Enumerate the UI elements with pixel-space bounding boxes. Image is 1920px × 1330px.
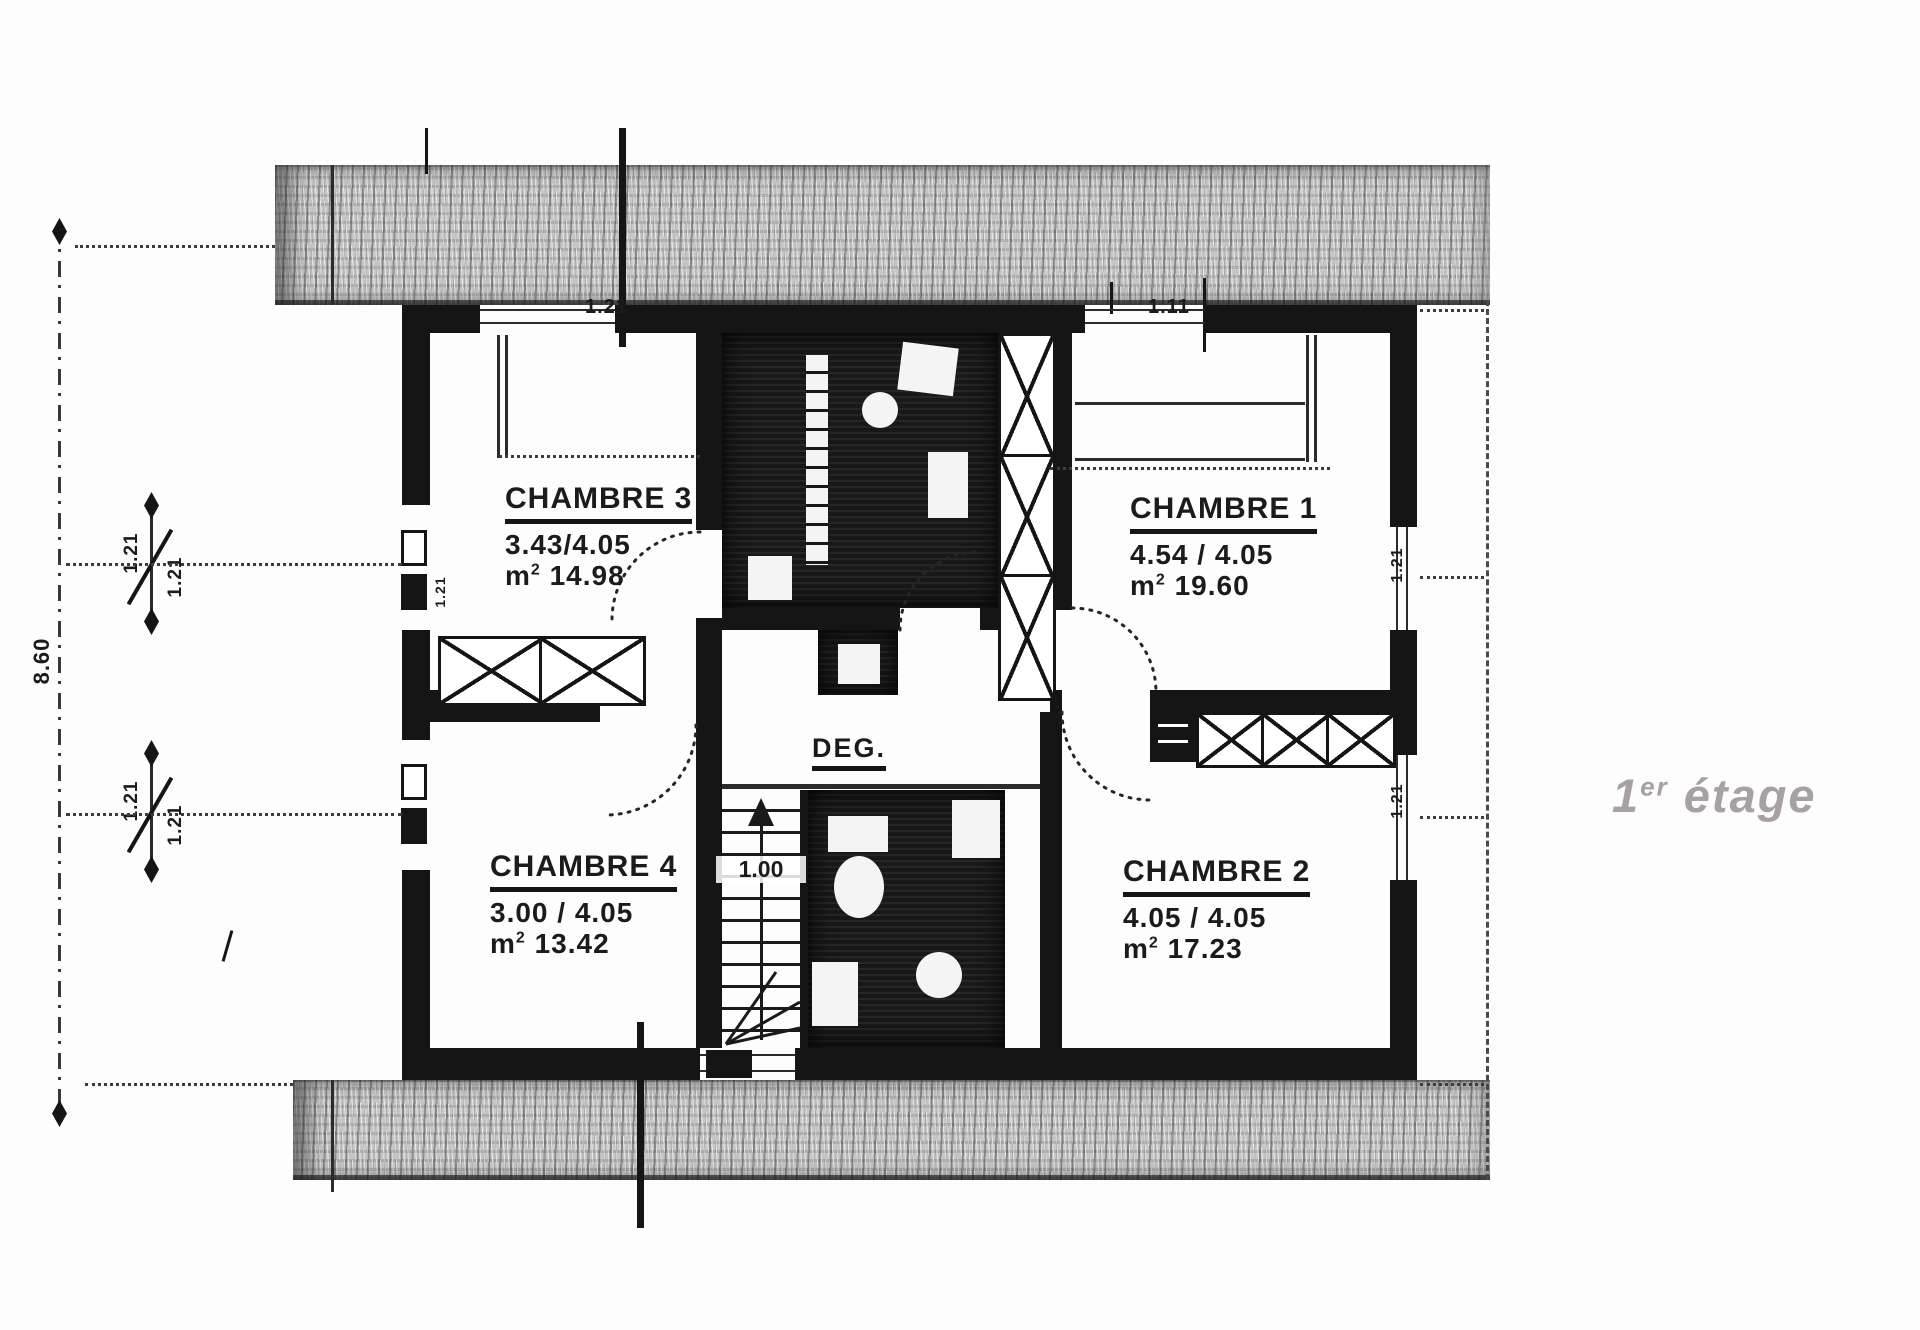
window-dim-right-upper: 1.21 (1389, 535, 1407, 595)
ref-line (1420, 576, 1484, 579)
dim-label-left-lower-bottom: 1.21 (165, 793, 187, 857)
window-dim-left-jamb: 1.21 (432, 566, 448, 618)
room-label-chambre-4: CHAMBRE 4 3.00 / 4.05 m2 13.42 (490, 850, 677, 959)
floor-plan-scan: 1.00 CHAMBRE 3 3.43/4.05 m2 14.98 CHAMBR… (0, 0, 1920, 1330)
ref-line (66, 563, 402, 566)
room-name: CHAMBRE 2 (1123, 855, 1310, 897)
door-arc-chambre1 (1072, 608, 1156, 692)
hall-label: DEG. (812, 733, 886, 771)
room-dimensions: 3.43/4.05 (505, 529, 692, 560)
window-dim-top-left: 1.21 (585, 296, 628, 319)
room-area: m2 14.98 (505, 560, 692, 591)
overall-dim-line (58, 225, 61, 1120)
window-dim-top-right: 1.11 (1148, 296, 1190, 319)
room-dimensions: 3.00 / 4.05 (490, 897, 677, 928)
room-label-chambre-2: CHAMBRE 2 4.05 / 4.05 m2 17.23 (1123, 855, 1310, 964)
room-area: m2 13.42 (490, 928, 677, 959)
room-name: CHAMBRE 1 (1130, 492, 1317, 534)
ref-line (1420, 1083, 1484, 1086)
room-dimensions: 4.54 / 4.05 (1130, 539, 1317, 570)
ref-line (75, 245, 275, 248)
room-area: m2 17.23 (1123, 933, 1310, 964)
room-label-chambre-3: CHAMBRE 3 3.43/4.05 m2 14.98 (505, 482, 692, 591)
door-arc-chambre2 (1062, 712, 1150, 800)
room-dimensions: 4.05 / 4.05 (1123, 902, 1310, 933)
dim-label-left-upper-top: 1.21 (121, 521, 143, 585)
stair-winder-line (726, 1002, 800, 1044)
ref-line (66, 813, 402, 816)
eave-dashed-line (1486, 300, 1489, 1180)
ref-line (1420, 816, 1484, 819)
ref-line (85, 1083, 293, 1086)
dim-label-left-upper-bottom: 1.21 (165, 545, 187, 609)
door-arc-chambre4 (606, 725, 696, 815)
dim-label-left-lower-top: 1.21 (121, 769, 143, 833)
room-name: CHAMBRE 4 (490, 850, 677, 892)
window-dim-right-lower: 1.21 (1389, 771, 1407, 831)
stair-winder-line (726, 972, 776, 1044)
door-swing-overlay (0, 0, 1920, 1330)
overall-height-label: 8.60 (29, 621, 55, 701)
room-label-chambre-1: CHAMBRE 1 4.54 / 4.05 m2 19.60 (1130, 492, 1317, 601)
ref-line (1420, 309, 1484, 312)
door-arc-bathroom (900, 552, 978, 630)
floor-title: 1er étage (1612, 768, 1817, 823)
room-name: CHAMBRE 3 (505, 482, 692, 524)
room-area: m2 19.60 (1130, 570, 1317, 601)
